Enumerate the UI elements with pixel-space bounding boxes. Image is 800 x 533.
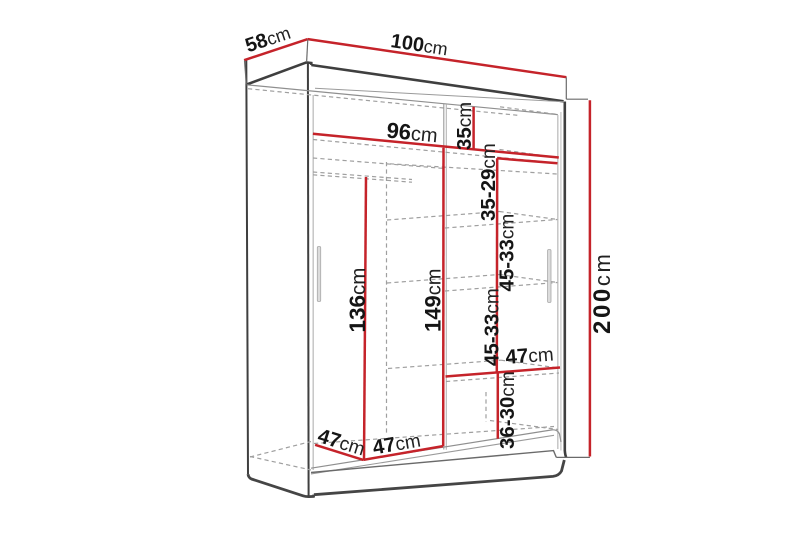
svg-text:149cm: 149cm	[421, 269, 446, 332]
svg-text:47cm: 47cm	[505, 342, 555, 369]
svg-text:45-33cm: 45-33cm	[496, 214, 519, 292]
svg-text:36-30cm: 36-30cm	[496, 371, 519, 449]
svg-text:35cm: 35cm	[453, 102, 476, 150]
svg-text:136cm: 136cm	[345, 268, 370, 333]
svg-text:200cm: 200cm	[589, 252, 616, 334]
svg-text:45-33cm: 45-33cm	[481, 288, 504, 366]
svg-text:35-29cm: 35-29cm	[477, 143, 500, 221]
